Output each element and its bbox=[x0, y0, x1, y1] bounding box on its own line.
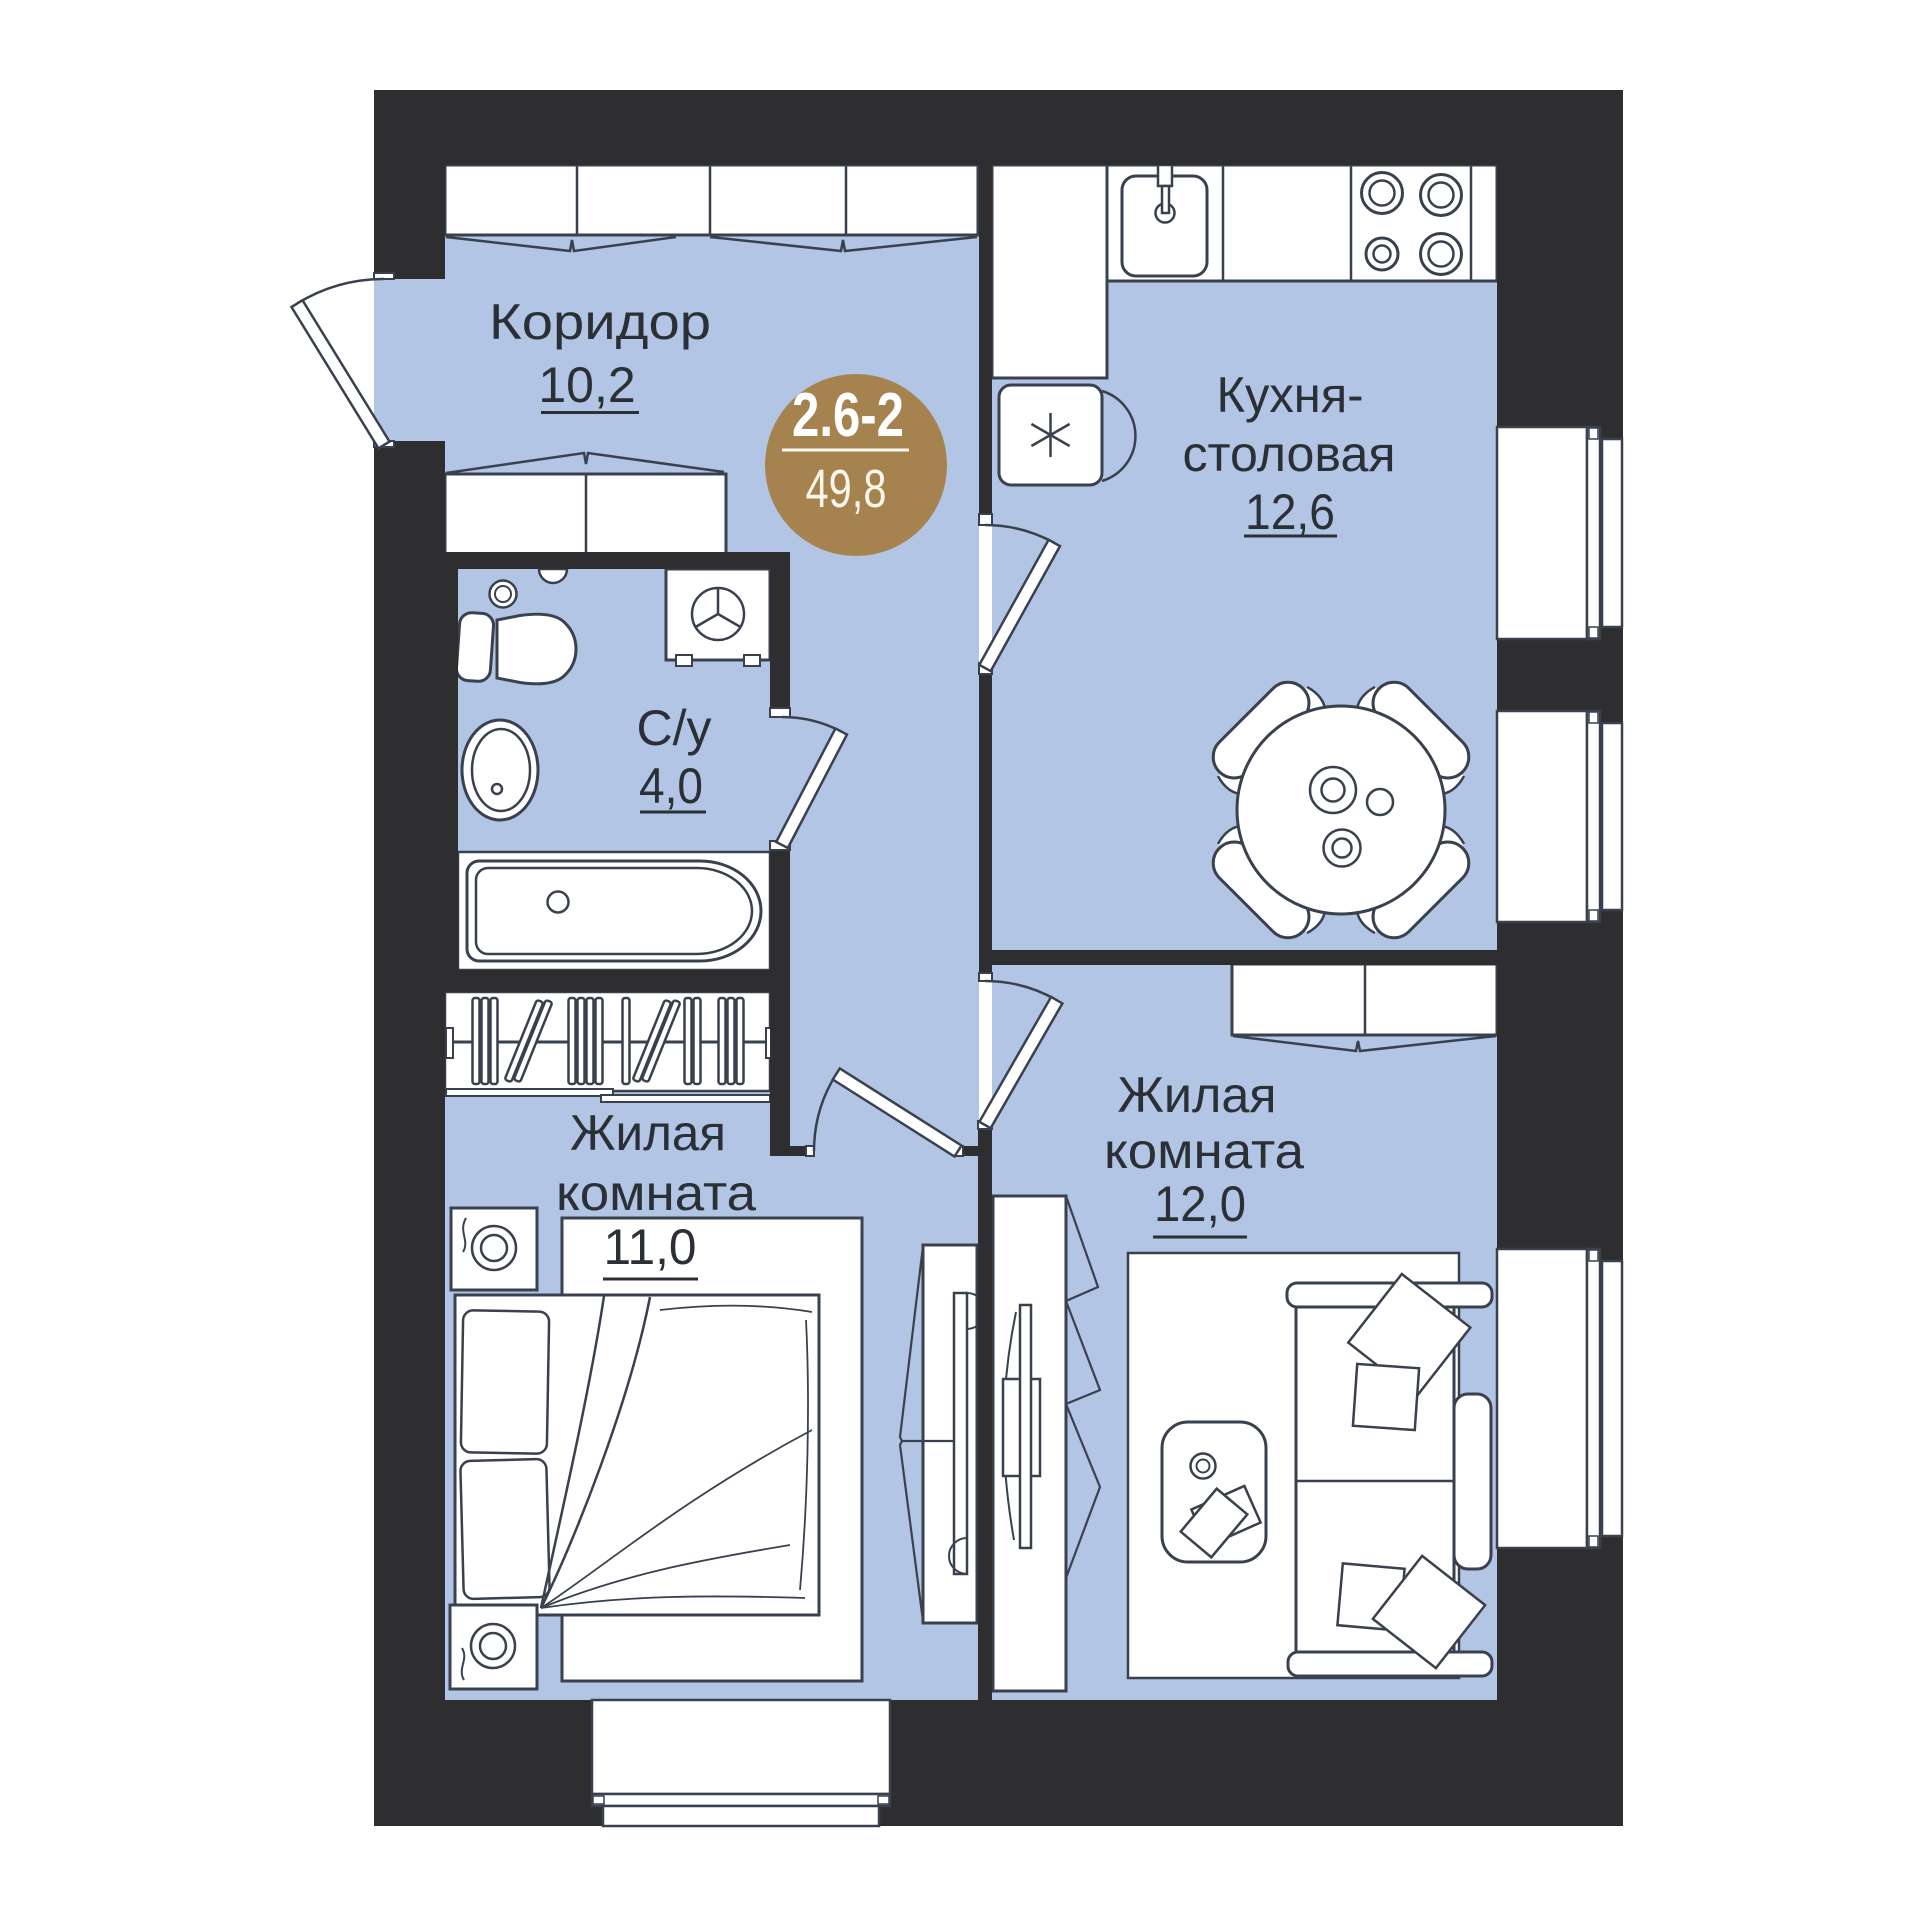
svg-text:12,6: 12,6 bbox=[1245, 484, 1335, 540]
svg-text:Жилая: Жилая bbox=[570, 1105, 726, 1161]
svg-text:С/у: С/у bbox=[637, 700, 712, 756]
svg-text:49,8: 49,8 bbox=[806, 459, 887, 519]
svg-text:столовая: столовая bbox=[1183, 426, 1396, 482]
svg-text:Кухня-: Кухня- bbox=[1217, 367, 1364, 423]
svg-text:4,0: 4,0 bbox=[639, 758, 703, 814]
svg-text:Жилая: Жилая bbox=[1118, 1067, 1277, 1123]
svg-text:Коридор: Коридор bbox=[489, 294, 711, 350]
svg-text:11,0: 11,0 bbox=[604, 1219, 697, 1275]
svg-text:комната: комната bbox=[556, 1165, 756, 1221]
svg-text:12,0: 12,0 bbox=[1154, 1176, 1246, 1232]
svg-text:10,2: 10,2 bbox=[538, 357, 635, 413]
svg-text:комната: комната bbox=[1104, 1123, 1304, 1179]
svg-text:2.6-2: 2.6-2 bbox=[792, 381, 904, 450]
